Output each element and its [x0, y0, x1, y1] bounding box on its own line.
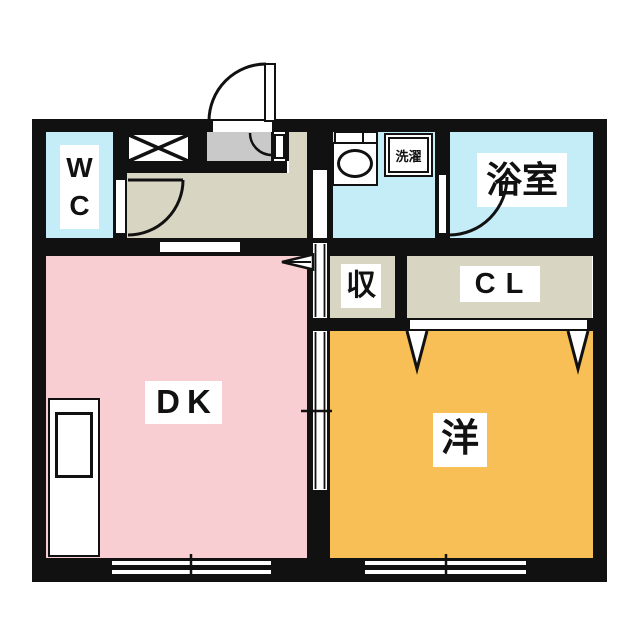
western-label: 洋 — [433, 413, 487, 467]
window-dk-pane1 — [110, 559, 273, 567]
bathroom-label: 浴室 — [477, 153, 567, 207]
kitchen-sink — [55, 412, 93, 478]
wc-label-text: WC — [65, 149, 95, 225]
door-jamb — [274, 134, 285, 159]
entry-door-opening — [213, 121, 272, 132]
closet-door-strip — [410, 318, 587, 331]
window-western-pane2 — [363, 568, 528, 576]
sliding-door-lower — [313, 331, 327, 490]
western-label-text: 洋 — [441, 420, 479, 460]
outer-wall-left — [32, 119, 46, 582]
shoe-cabinet-icon — [125, 131, 192, 165]
wall-under-shoe-cabinet — [125, 165, 207, 173]
washroom-doorway — [313, 170, 327, 238]
bathroom-label-text: 浴室 — [486, 161, 558, 199]
wall-closet-right-end — [587, 318, 593, 331]
entry-door-leaf — [264, 63, 276, 122]
washing-machine-inner: 洗濯 — [388, 137, 429, 173]
window-dk-pane2 — [110, 568, 273, 576]
entry-door-swing-arc — [209, 64, 266, 121]
washing-machine: 洗濯 — [384, 133, 433, 177]
wall-under-storage — [330, 318, 410, 331]
hall-corner-floor — [289, 132, 308, 173]
dk-label: DK — [145, 381, 222, 424]
vanity-sink-bowl-icon — [337, 149, 373, 178]
window-western-pane1 — [363, 559, 528, 567]
outer-wall-right — [593, 119, 607, 582]
laundry-label: 洗濯 — [395, 146, 421, 165]
dk-label-text: DK — [156, 385, 218, 420]
bath-door-leaf — [437, 173, 448, 235]
floor-plan: 洗濯 浴室 収 CL DK 洋 WC — [0, 0, 640, 640]
closet-label-text: CL — [475, 269, 534, 299]
closet-label: CL — [460, 266, 540, 302]
entrance-step-edge — [207, 161, 287, 173]
wc-label: WC — [60, 145, 99, 229]
sliding-door-upper — [313, 243, 327, 318]
hallway — [127, 173, 308, 238]
hall-dk-doorway — [160, 242, 240, 252]
storage-label: 収 — [341, 264, 381, 308]
wc-door-leaf — [114, 178, 127, 235]
storage-label-text: 収 — [346, 270, 376, 302]
entrance-area — [207, 132, 271, 161]
